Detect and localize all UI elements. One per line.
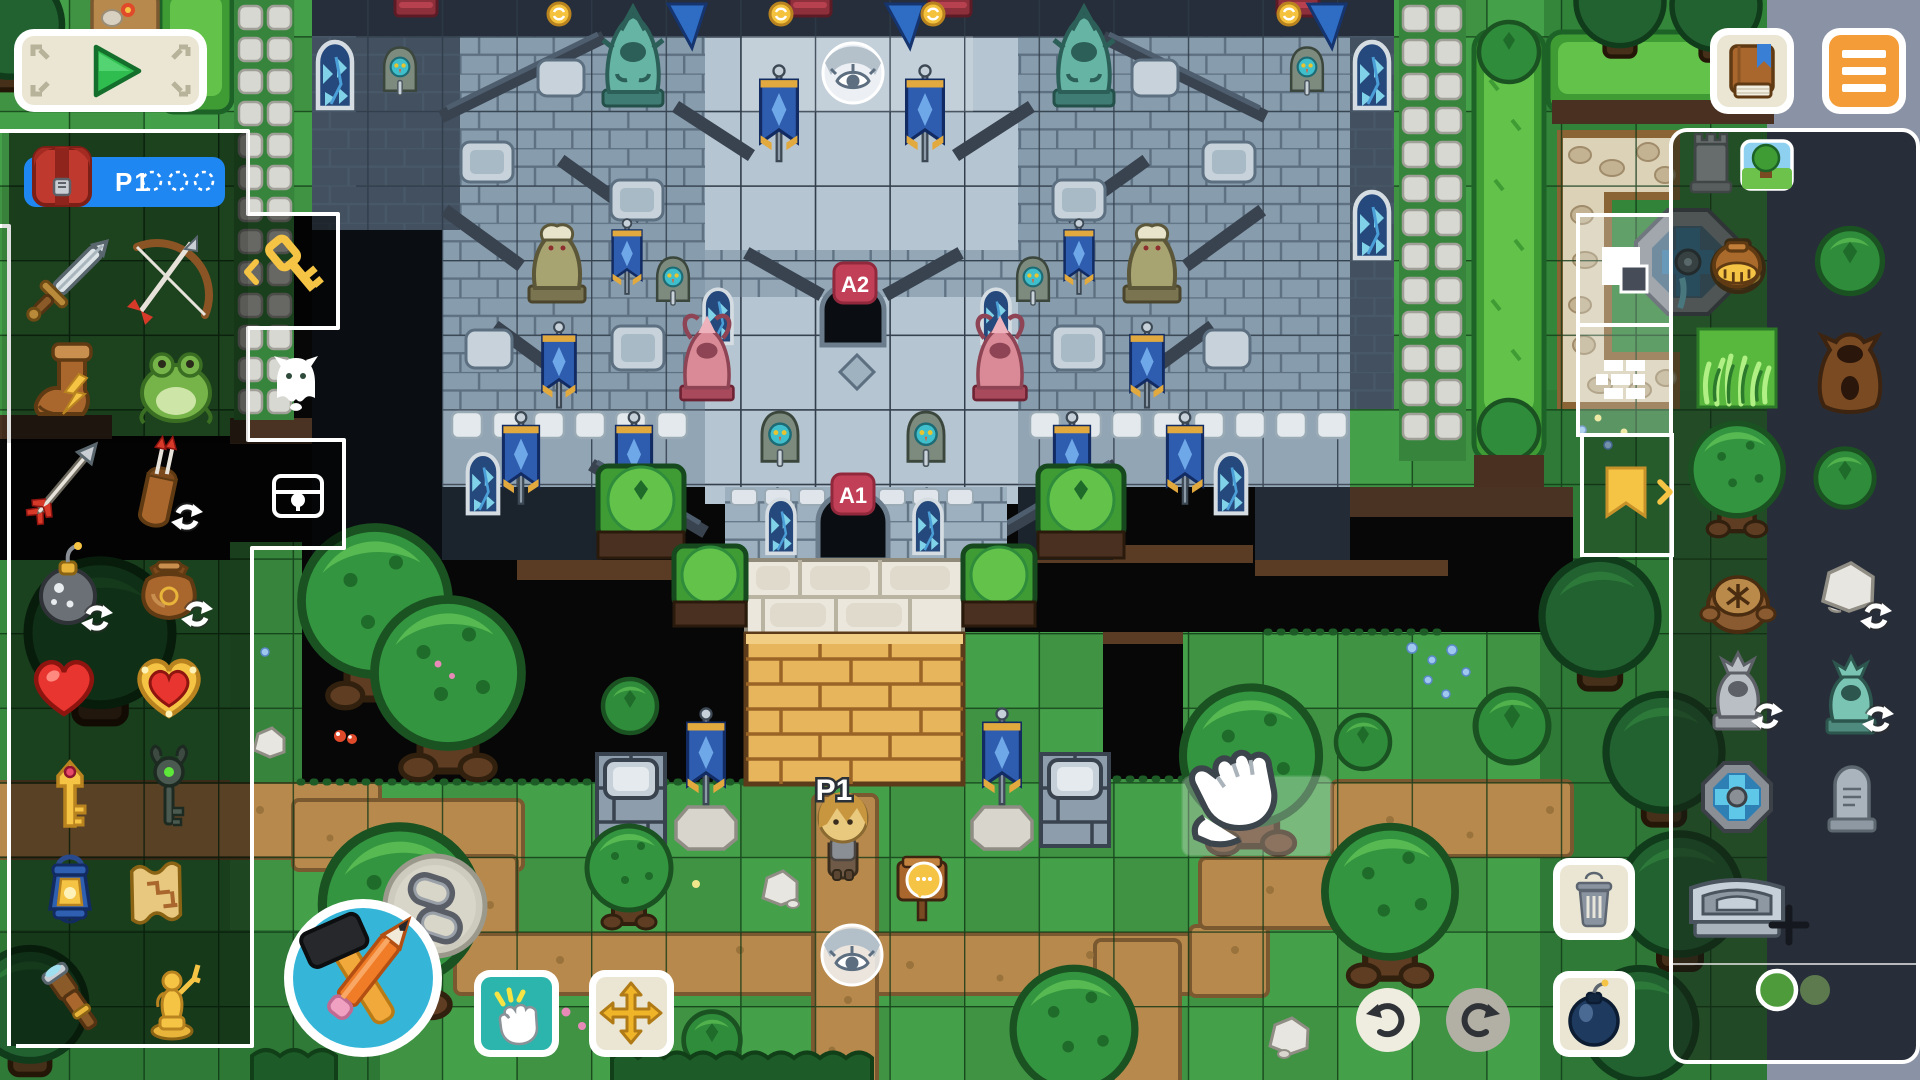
svg-text:A1: A1 <box>839 483 867 508</box>
svg-text:P1: P1 <box>115 167 151 197</box>
svg-text:A2: A2 <box>841 272 869 297</box>
svg-text:P1: P1 <box>816 774 853 807</box>
